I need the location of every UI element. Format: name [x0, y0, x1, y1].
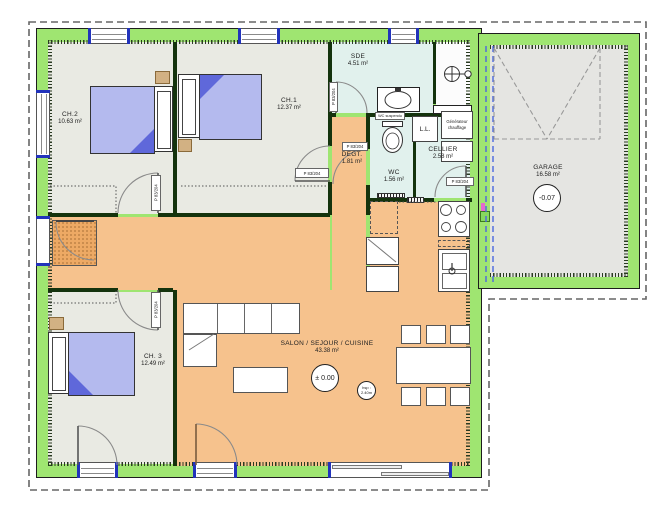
closet-dotted-ch2: [50, 186, 116, 213]
door-label-wc: P 83/204: [342, 142, 368, 151]
room-area: 12.37 m²: [277, 105, 301, 113]
garage-door-swing-dashed: [494, 48, 600, 139]
level-marker-salon: ± 0.00: [311, 364, 339, 392]
level-value: ± 0.00: [315, 375, 334, 382]
room-area: 1.81 m²: [342, 159, 363, 167]
door-label-ch2: P 83/204: [151, 175, 161, 211]
door-label-ch1: P 83/204: [295, 168, 329, 178]
sde-tap-icon: [395, 88, 401, 91]
room-area: 1.56 m²: [384, 177, 404, 185]
cooktop-burner: [456, 222, 467, 233]
door-label-text: P 83/204: [347, 144, 364, 149]
room-name: SDE: [348, 53, 368, 61]
door-label-text: P 83/204: [154, 302, 159, 319]
door-arc-entry: [56, 222, 94, 260]
door-label-sde: P 83/204: [329, 82, 338, 112]
door-label-cellier: P 83/204: [446, 177, 474, 186]
door-label-ch3: P 83/204: [151, 292, 161, 328]
closet-dotted-ch3: [50, 291, 116, 303]
room-name: CH.1: [277, 97, 301, 105]
door-arc-frenchdoor-salon: [196, 424, 237, 465]
room-area: 16.58 m²: [533, 172, 563, 180]
room-area: 12.49 m²: [141, 361, 165, 369]
door-label-text: P 83/204: [331, 89, 336, 106]
cooktop-burner: [441, 205, 452, 216]
sde-basin-icon: [385, 92, 411, 109]
room-name: CH. 3: [141, 353, 165, 361]
door-arc-sde: [336, 82, 367, 113]
room-label-ch3: CH. 312.49 m²: [141, 353, 165, 369]
ceiling-value: 2.40m: [361, 391, 372, 396]
room-label-ch2: CH.210.63 m²: [58, 111, 82, 127]
room-area: 4.51 m²: [348, 61, 368, 69]
linework-overlay: [0, 0, 656, 525]
room-label-cellier: CELLIER2.58 m²: [428, 146, 457, 162]
room-label-sde: SDE4.51 m²: [348, 53, 368, 69]
level-marker-garage: -0.07: [533, 184, 561, 212]
door-label-text: P 83/204: [304, 171, 321, 176]
garage-house-divider-dashed: [486, 46, 493, 286]
cooktop-burner: [457, 206, 466, 215]
room-name: DEGT.: [342, 151, 363, 159]
room-name: GARAGE: [533, 164, 563, 172]
room-name: SALON / SEJOUR / CUISINE: [281, 340, 374, 348]
room-label-degt: DEGT.1.81 m²: [342, 151, 363, 167]
room-label-garage: GARAGE16.58 m²: [533, 164, 563, 180]
wc-suspendu-note: WC suspendu: [375, 112, 405, 120]
room-area: 10.63 m²: [58, 119, 82, 127]
door-label-text: P 83/204: [154, 185, 159, 202]
floor-plan: L.L. Générateur chauffage WC suspendu: [0, 0, 656, 525]
sofa-chaise-diagonal: [189, 334, 214, 350]
cooktop-burner: [442, 223, 451, 232]
door-label-text: P 83/204: [452, 179, 469, 184]
wc-suspendu-text: WC suspendu: [378, 114, 402, 118]
fridge-diagonal: [368, 239, 396, 262]
shower-head-icon: [465, 71, 471, 77]
room-name: CH.2: [58, 111, 82, 119]
level-value: -0.07: [539, 195, 555, 202]
room-name: WC: [384, 169, 404, 177]
room-name: CELLIER: [428, 146, 457, 154]
room-label-salon: SALON / SEJOUR / CUISINE43.38 m²: [281, 340, 374, 356]
ceiling-height-marker: hsp :2.40m: [357, 381, 376, 400]
room-label-ch1: CH.112.37 m²: [277, 97, 301, 113]
room-label-wc: WC1.56 m²: [384, 169, 404, 185]
room-area: 43.38 m²: [281, 348, 374, 356]
door-arc-frenchdoor-ch3: [78, 426, 117, 465]
room-area: 2.58 m²: [428, 154, 457, 162]
